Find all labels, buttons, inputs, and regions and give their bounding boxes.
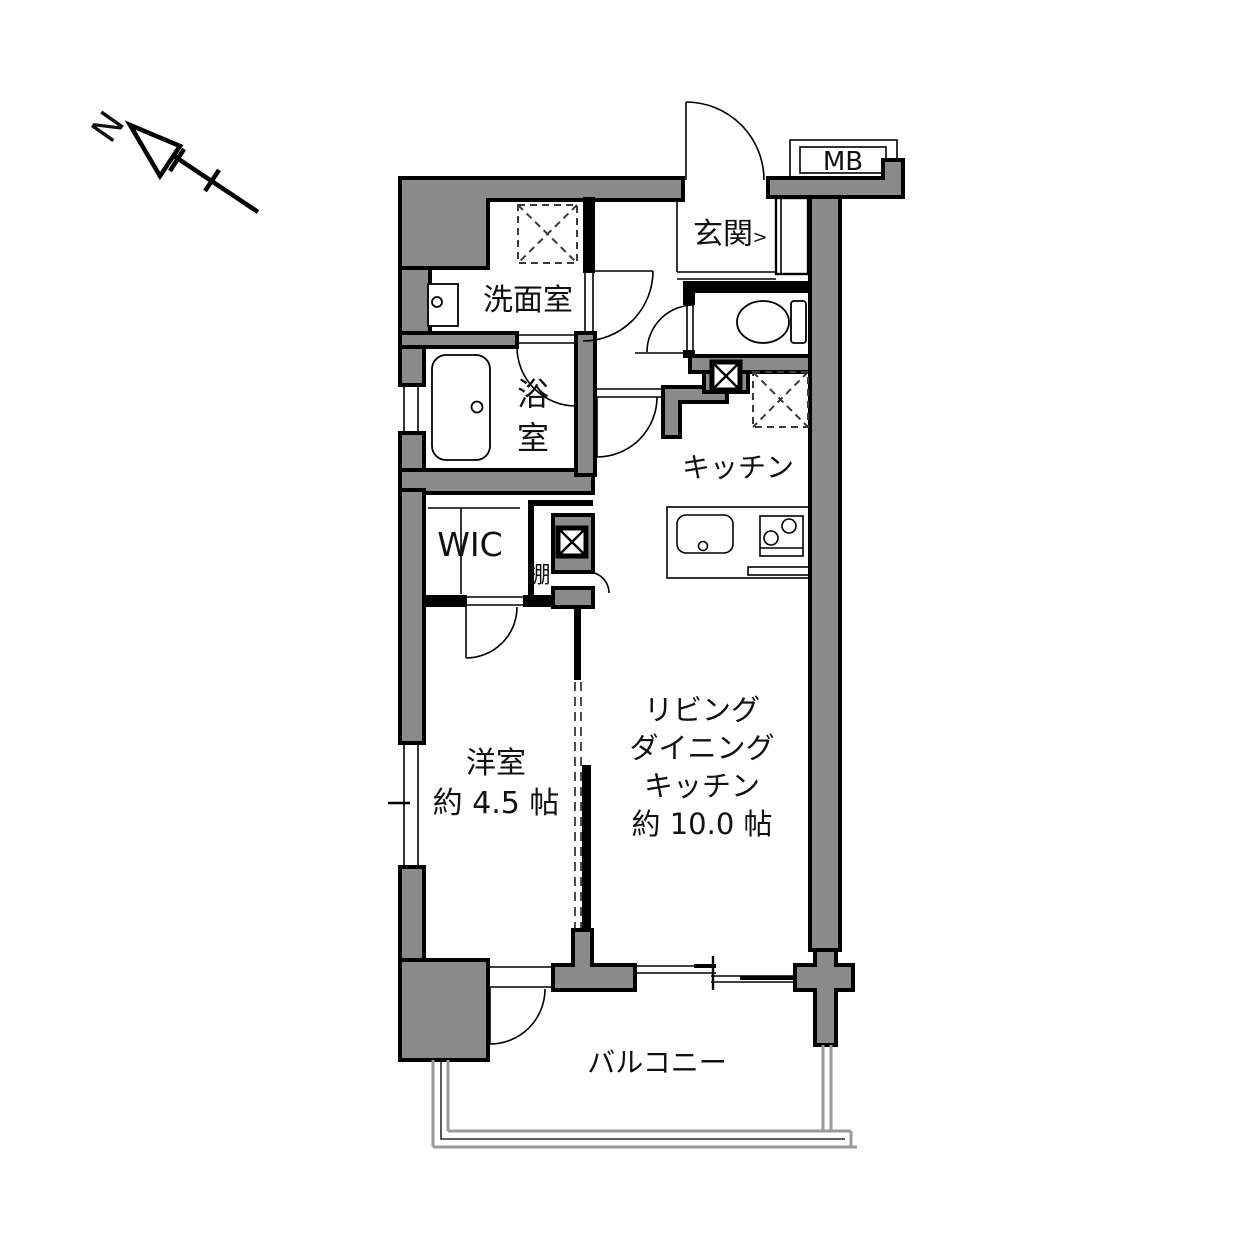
ldk-label-2: ダイニング [629, 731, 774, 765]
washroom-label: 洗面室 [483, 283, 573, 318]
shelf-label: 棚 [528, 562, 551, 588]
ldk-label-1: リビング [644, 693, 760, 727]
ldk-label-3: キッチン [644, 769, 760, 803]
balcony-sliding-window [637, 956, 797, 990]
north-arrow-icon: N [84, 104, 258, 212]
western-room-door [466, 597, 523, 658]
bathroom-label-1: 浴 [517, 375, 549, 413]
balcony-label: バルコニー [587, 1046, 726, 1079]
meter-box: MB [790, 140, 897, 178]
balcony-door [488, 967, 553, 1044]
toilet-door [635, 305, 694, 353]
washbasin-icon [428, 284, 458, 326]
kitchen-door [595, 389, 663, 457]
pipe-space-icon-2 [558, 528, 586, 556]
kitchen-counter [667, 507, 810, 578]
stove-icon [760, 516, 803, 556]
ldk-label-4: 約 10.0 帖 [631, 807, 772, 841]
north-label: N [84, 104, 133, 150]
western-room-window [388, 743, 418, 867]
floor-plan-page: N MB [0, 0, 1252, 1252]
shoe-cabinet [776, 198, 808, 274]
wic-label: WIC [437, 525, 502, 564]
western-room-label-1: 洋室 [466, 746, 526, 781]
kitchen-label: キッチン [682, 451, 794, 484]
meter-box-label: MB [823, 147, 863, 177]
washing-machine-area [518, 205, 577, 263]
shoe-cabinet-arrow: > [752, 227, 767, 248]
entrance-label: 玄関 [693, 217, 753, 252]
kitchen-sink-icon [677, 515, 733, 553]
pipe-space-icon [712, 362, 740, 390]
bathroom-label-2: 室 [517, 419, 549, 457]
entrance-door [686, 102, 764, 180]
exterior-walls [400, 160, 903, 1060]
refrigerator-area [753, 372, 808, 427]
bathroom-window [404, 385, 418, 433]
toilet-icon [737, 301, 806, 343]
western-room-label-2: 約 4.5 帖 [433, 786, 560, 821]
floor-plan: N MB [0, 0, 1252, 1252]
washroom-door [583, 271, 653, 341]
sliding-partition [574, 607, 591, 928]
bathtub-icon [432, 355, 490, 460]
